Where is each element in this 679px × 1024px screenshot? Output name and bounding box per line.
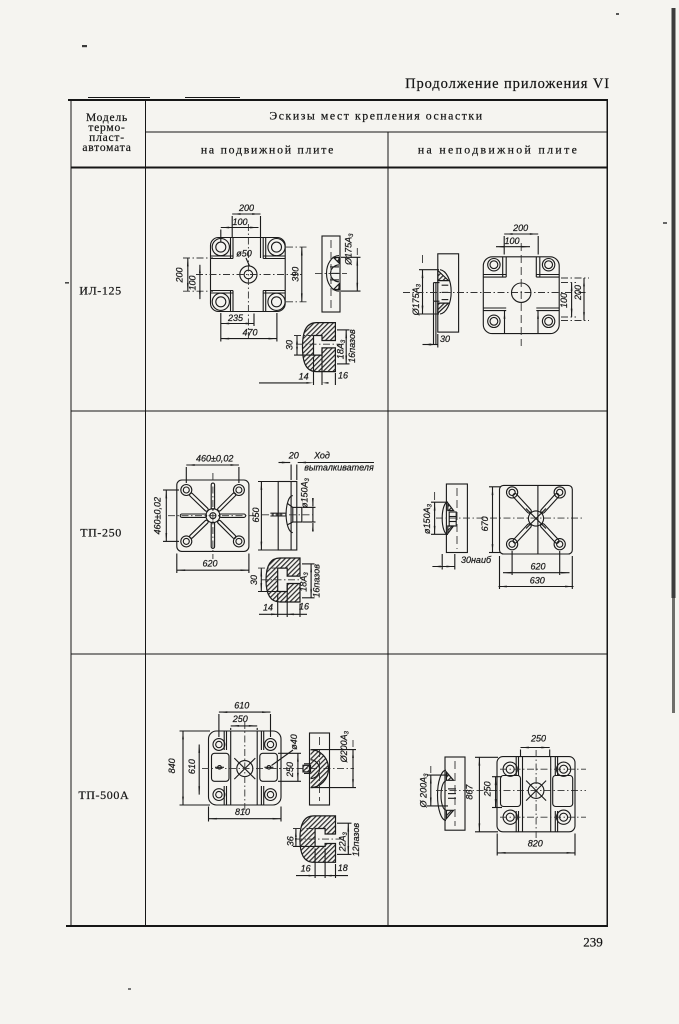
svg-text:840: 840	[167, 758, 177, 773]
svg-text:250: 250	[285, 762, 295, 778]
svg-text:239: 239	[583, 935, 603, 950]
svg-text:460±0,02: 460±0,02	[196, 453, 233, 463]
svg-text:200: 200	[573, 285, 583, 301]
svg-text:ИЛ-125: ИЛ-125	[79, 284, 121, 298]
svg-text:250: 250	[232, 714, 248, 724]
svg-text:16пазов: 16пазов	[311, 564, 321, 598]
svg-text:390: 390	[291, 267, 301, 282]
svg-text:12пазов: 12пазов	[351, 823, 361, 857]
svg-text:470: 470	[242, 328, 257, 338]
svg-text:ø40: ø40	[289, 734, 299, 750]
svg-text:650: 650	[251, 507, 261, 522]
svg-text:автомата: автомата	[82, 142, 131, 154]
svg-text:ТП-250: ТП-250	[80, 526, 122, 540]
svg-text:100: 100	[188, 275, 198, 290]
svg-text:Ø175A3: Ø175A3	[411, 283, 423, 316]
svg-text:460±0,02: 460±0,02	[152, 497, 162, 534]
svg-text:100: 100	[559, 293, 569, 308]
svg-text:820: 820	[528, 838, 543, 848]
svg-text:14: 14	[299, 372, 309, 382]
svg-text:на подвижной плите: на подвижной плите	[201, 143, 335, 157]
svg-text:Эскизы мест крепления оснастки: Эскизы мест крепления оснастки	[269, 109, 483, 123]
svg-text:200: 200	[238, 203, 254, 213]
svg-text:810: 810	[235, 807, 250, 817]
svg-text:36: 36	[286, 836, 296, 846]
svg-text:ø150A3: ø150A3	[422, 503, 434, 534]
svg-text:Ø200A3: Ø200A3	[339, 730, 351, 763]
svg-text:200: 200	[175, 267, 185, 283]
svg-text:100: 100	[232, 217, 247, 227]
svg-text:ø50: ø50	[236, 249, 252, 259]
svg-text:670: 670	[480, 516, 490, 531]
svg-text:16пазов: 16пазов	[347, 329, 357, 363]
svg-text:620: 620	[530, 562, 545, 572]
svg-text:20: 20	[288, 450, 299, 460]
svg-text:250: 250	[530, 733, 546, 743]
svg-text:Продолжение приложения VI: Продолжение приложения VI	[405, 76, 610, 92]
svg-text:30: 30	[285, 340, 295, 350]
svg-text:Ход: Ход	[313, 450, 330, 460]
svg-text:ТП-500А: ТП-500А	[78, 788, 129, 802]
svg-text:610: 610	[234, 700, 249, 710]
svg-text:30: 30	[249, 575, 259, 585]
svg-text:100: 100	[504, 236, 519, 246]
svg-text:на неподвижной плите: на неподвижной плите	[418, 143, 579, 157]
svg-text:18: 18	[338, 863, 348, 873]
svg-text:16: 16	[301, 863, 311, 873]
svg-text:14: 14	[263, 603, 273, 613]
svg-text:630: 630	[530, 575, 545, 585]
svg-text:30: 30	[440, 334, 450, 344]
svg-text:867: 867	[465, 784, 475, 800]
svg-text:Ø175A3: Ø175A3	[344, 233, 356, 266]
svg-text:235: 235	[227, 313, 244, 323]
svg-text:16: 16	[338, 371, 348, 381]
svg-text:620: 620	[202, 559, 217, 569]
svg-text:выталкивателя: выталкивателя	[304, 462, 374, 472]
svg-text:200: 200	[512, 223, 528, 233]
svg-text:Ø 200A3: Ø 200A3	[418, 773, 430, 809]
svg-text:250: 250	[483, 781, 493, 797]
svg-text:30наиб: 30наиб	[461, 555, 492, 565]
svg-text:16: 16	[299, 601, 309, 611]
svg-text:610: 610	[187, 759, 197, 774]
svg-text:ø150A3: ø150A3	[299, 478, 311, 509]
